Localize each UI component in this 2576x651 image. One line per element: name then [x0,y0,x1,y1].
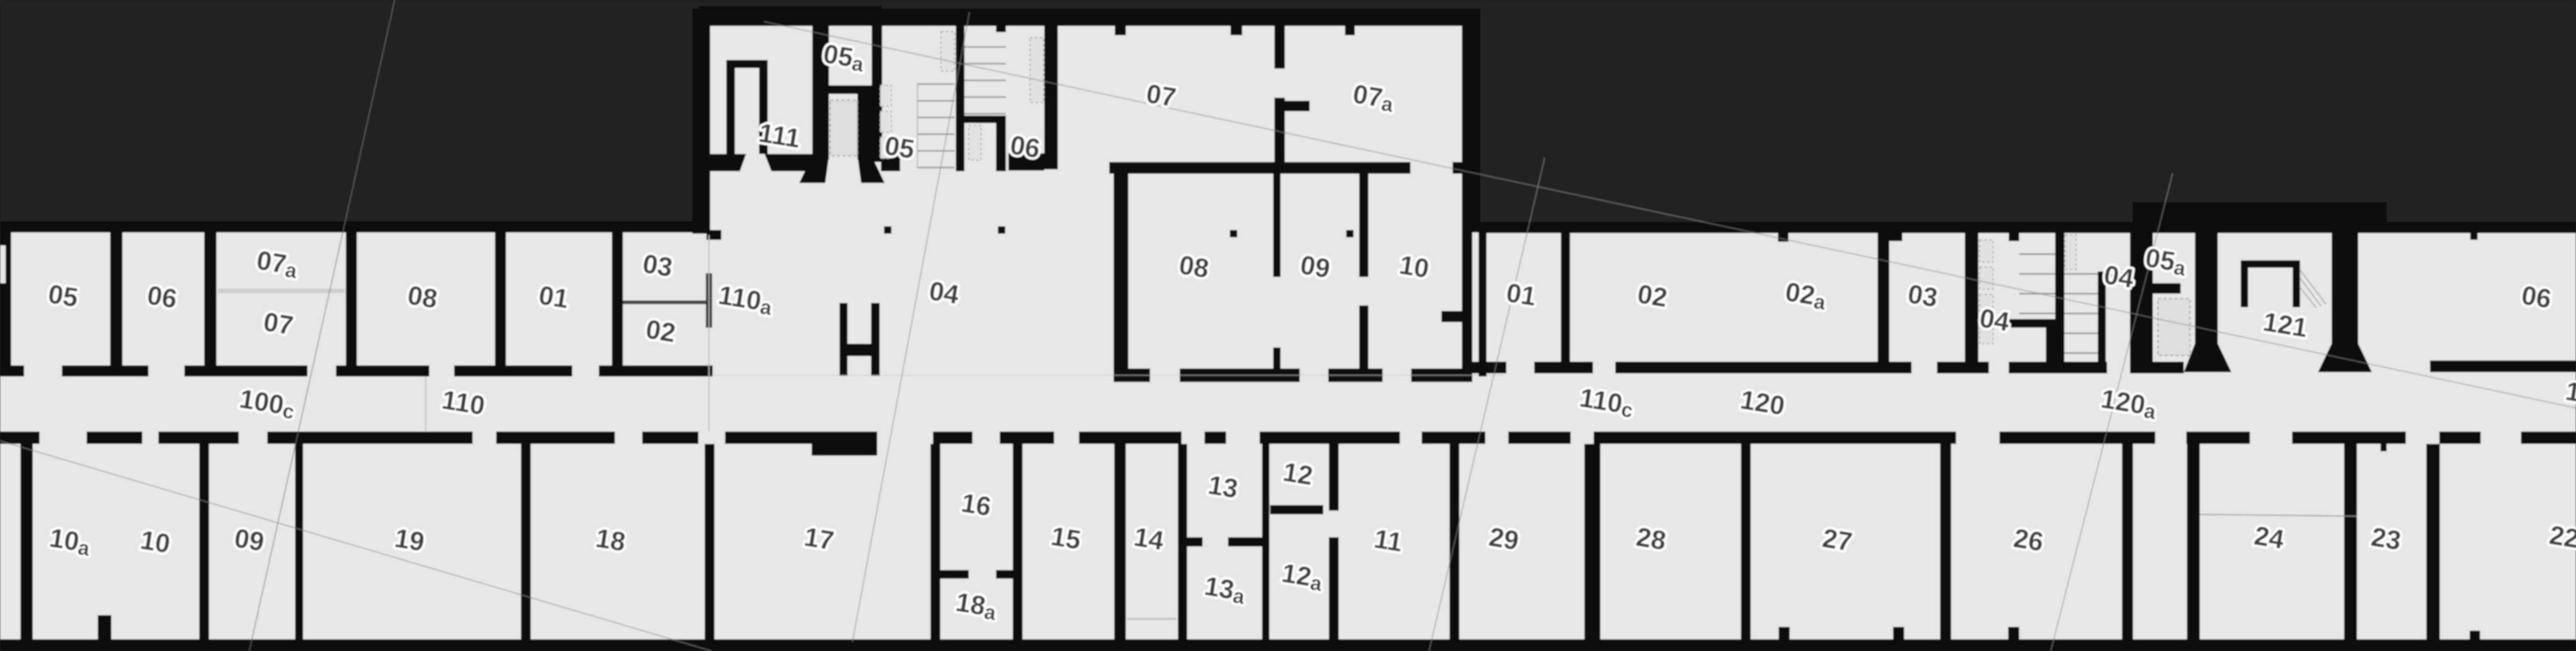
svg-text:06: 06 [2520,281,2554,315]
svg-text:06: 06 [145,281,179,315]
svg-text:05: 05 [46,279,80,313]
svg-text:06: 06 [1008,130,1042,164]
svg-text:01: 01 [1505,278,1539,312]
svg-text:22: 22 [2548,521,2576,555]
svg-text:10: 10 [1397,250,1432,284]
svg-text:23: 23 [2369,522,2403,556]
svg-text:26: 26 [2012,524,2046,558]
svg-text:02: 02 [1636,279,1670,313]
svg-text:13: 13 [1206,470,1240,504]
svg-text:17: 17 [802,522,836,556]
svg-text:02: 02 [644,315,678,349]
svg-text:09: 09 [1299,250,1333,284]
svg-text:04: 04 [927,276,961,310]
svg-text:09: 09 [233,524,267,558]
svg-text:24: 24 [2252,521,2286,555]
svg-text:08: 08 [1177,250,1211,284]
svg-text:07: 07 [1144,79,1179,113]
svg-text:11: 11 [1372,524,1404,558]
svg-text:08: 08 [406,281,440,315]
svg-text:05: 05 [883,131,917,165]
svg-text:28: 28 [1634,522,1668,556]
svg-text:04: 04 [2102,260,2136,294]
svg-text:19: 19 [393,524,427,558]
svg-text:14: 14 [1132,522,1166,556]
svg-text:03: 03 [641,249,675,283]
svg-text:10: 10 [139,525,173,560]
svg-text:07: 07 [262,307,296,341]
svg-text:16: 16 [960,488,994,522]
svg-text:18: 18 [594,524,628,558]
svg-text:04: 04 [1978,304,2012,338]
svg-text:01: 01 [537,281,571,315]
svg-text:12: 12 [1281,457,1315,491]
svg-text:15: 15 [1049,522,1083,556]
svg-text:29: 29 [1487,522,1521,556]
svg-text:03: 03 [1906,279,1940,313]
svg-text:27: 27 [1821,524,1855,558]
